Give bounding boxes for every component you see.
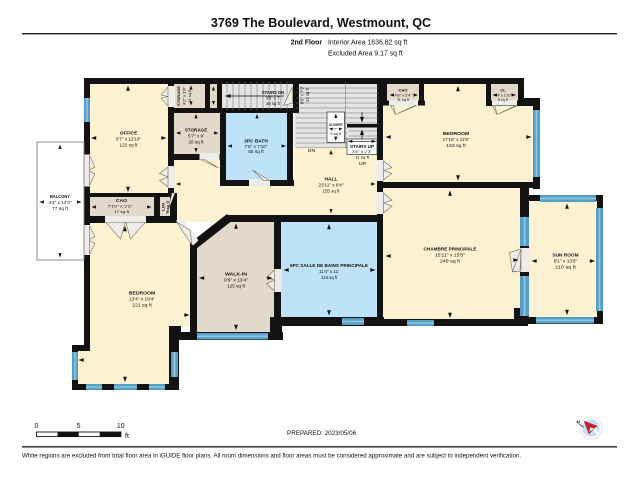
- svg-text:110 sq ft: 110 sq ft: [555, 264, 577, 269]
- svg-text:CAO: CAO: [399, 88, 408, 93]
- svg-text:9'6" x 7'9": 9'6" x 7'9": [300, 85, 305, 104]
- svg-text:11'4" x 11': 11'4" x 11': [319, 269, 339, 274]
- svg-text:2nd Floor: 2nd Floor: [291, 40, 323, 47]
- svg-text:122 sq ft: 122 sq ft: [120, 142, 139, 147]
- svg-text:7'10" x 2'2": 7'10" x 2'2": [108, 204, 134, 209]
- svg-text:STAIRS DN: STAIRS DN: [294, 84, 299, 106]
- svg-text:CHAMBRE PRINCIPALE: CHAMBRE PRINCIPALE: [424, 247, 477, 252]
- svg-text:HALL: HALL: [325, 177, 338, 182]
- svg-text:Interior Area 1636.82 sq ft: Interior Area 1636.82 sq ft: [328, 40, 407, 47]
- svg-text:OUVERT: OUVERT: [329, 122, 344, 127]
- svg-text:10: 10: [117, 423, 125, 430]
- svg-text:STAIRS UP: STAIRS UP: [350, 144, 374, 149]
- svg-text:4'2" x 3'9": 4'2" x 3'9": [183, 86, 187, 105]
- svg-text:26 sq ft: 26 sq ft: [266, 101, 281, 106]
- svg-text:WALK-IN: WALK-IN: [225, 272, 248, 277]
- svg-text:8 sq ft: 8 sq ft: [498, 98, 509, 102]
- svg-text:3769 The Boulevard, Westmount,: 3769 The Boulevard, Westmount, QC: [211, 16, 431, 30]
- svg-text:9 sq ft: 9 sq ft: [330, 132, 341, 136]
- svg-text:4'8" x 2'4": 4'8" x 2'4": [395, 93, 413, 97]
- svg-text:23'11" x 8'4": 23'11" x 8'4": [319, 182, 345, 187]
- svg-text:White regions are excluded fro: White regions are excluded from total fl…: [22, 453, 521, 460]
- svg-text:249 sq ft: 249 sq ft: [440, 258, 461, 263]
- svg-text:6PC SALLE DE BAINS PRINCIPALE: 6PC SALLE DE BAINS PRINCIPALE: [290, 263, 368, 268]
- svg-text:17 sq ft: 17 sq ft: [114, 209, 130, 214]
- svg-text:5 sq ft: 5 sq ft: [166, 201, 170, 213]
- svg-text:PREPARED: 2023/05/06: PREPARED: 2023/05/06: [287, 430, 357, 437]
- svg-text:UP: UP: [359, 161, 367, 166]
- svg-text:STORAGE: STORAGE: [185, 128, 208, 133]
- svg-text:55 sq ft: 55 sq ft: [248, 149, 264, 154]
- svg-text:BALCONY: BALCONY: [50, 194, 70, 199]
- svg-text:BEDROOM: BEDROOM: [443, 131, 469, 136]
- svg-text:CL: CL: [500, 88, 506, 93]
- svg-text:BEDROOM: BEDROOM: [129, 291, 155, 296]
- svg-text:221 sq ft: 221 sq ft: [132, 302, 152, 307]
- svg-text:5: 5: [77, 423, 81, 430]
- svg-text:LIN: LIN: [162, 202, 166, 211]
- svg-text:153 sq ft: 153 sq ft: [446, 143, 466, 148]
- svg-text:13'4" x 19'4": 13'4" x 19'4": [129, 296, 156, 301]
- svg-text:Excluded Area 9.17 sq ft: Excluded Area 9.17 sq ft: [328, 51, 403, 58]
- svg-text:ft: ft: [125, 433, 129, 440]
- svg-text:5'7" x 9': 5'7" x 9': [188, 133, 204, 138]
- svg-text:3'6" x 2'3": 3'6" x 2'3": [352, 150, 373, 154]
- svg-text:3'4" x 14'3": 3'4" x 14'3": [49, 200, 73, 205]
- svg-text:SUN ROOM: SUN ROOM: [552, 253, 578, 258]
- svg-text:11 sq ft: 11 sq ft: [188, 88, 192, 102]
- svg-text:9'9" x 13'4": 9'9" x 13'4": [224, 277, 249, 282]
- svg-text:77 sq ft: 77 sq ft: [52, 206, 69, 211]
- svg-text:28 sq ft: 28 sq ft: [189, 139, 205, 144]
- svg-text:8'1" x 13'5": 8'1" x 13'5": [554, 258, 578, 263]
- svg-text:3PC BATH: 3PC BATH: [244, 139, 268, 144]
- svg-text:11 sq ft: 11 sq ft: [397, 98, 410, 102]
- svg-text:STAIRS DN: STAIRS DN: [262, 90, 284, 95]
- svg-text:DN: DN: [308, 148, 316, 153]
- svg-text:51 sq ft: 51 sq ft: [305, 87, 310, 102]
- svg-text:124 sq ft: 124 sq ft: [321, 275, 338, 280]
- svg-text:9'7" x 12'10": 9'7" x 12'10": [116, 136, 142, 141]
- svg-text:15'11" x 15'5": 15'11" x 15'5": [435, 252, 466, 257]
- svg-text:OFFICE: OFFICE: [120, 131, 138, 136]
- svg-text:11 sq ft: 11 sq ft: [355, 156, 370, 160]
- svg-text:0: 0: [35, 423, 39, 430]
- svg-text:CAO: CAO: [116, 198, 128, 203]
- svg-text:STORAGE: STORAGE: [176, 86, 181, 106]
- svg-text:17'10" x 11'6": 17'10" x 11'6": [443, 137, 470, 142]
- svg-text:4'4" x 1'10": 4'4" x 1'10": [495, 93, 513, 97]
- svg-text:155 sq ft: 155 sq ft: [323, 188, 341, 193]
- svg-text:125 sq ft: 125 sq ft: [227, 283, 246, 288]
